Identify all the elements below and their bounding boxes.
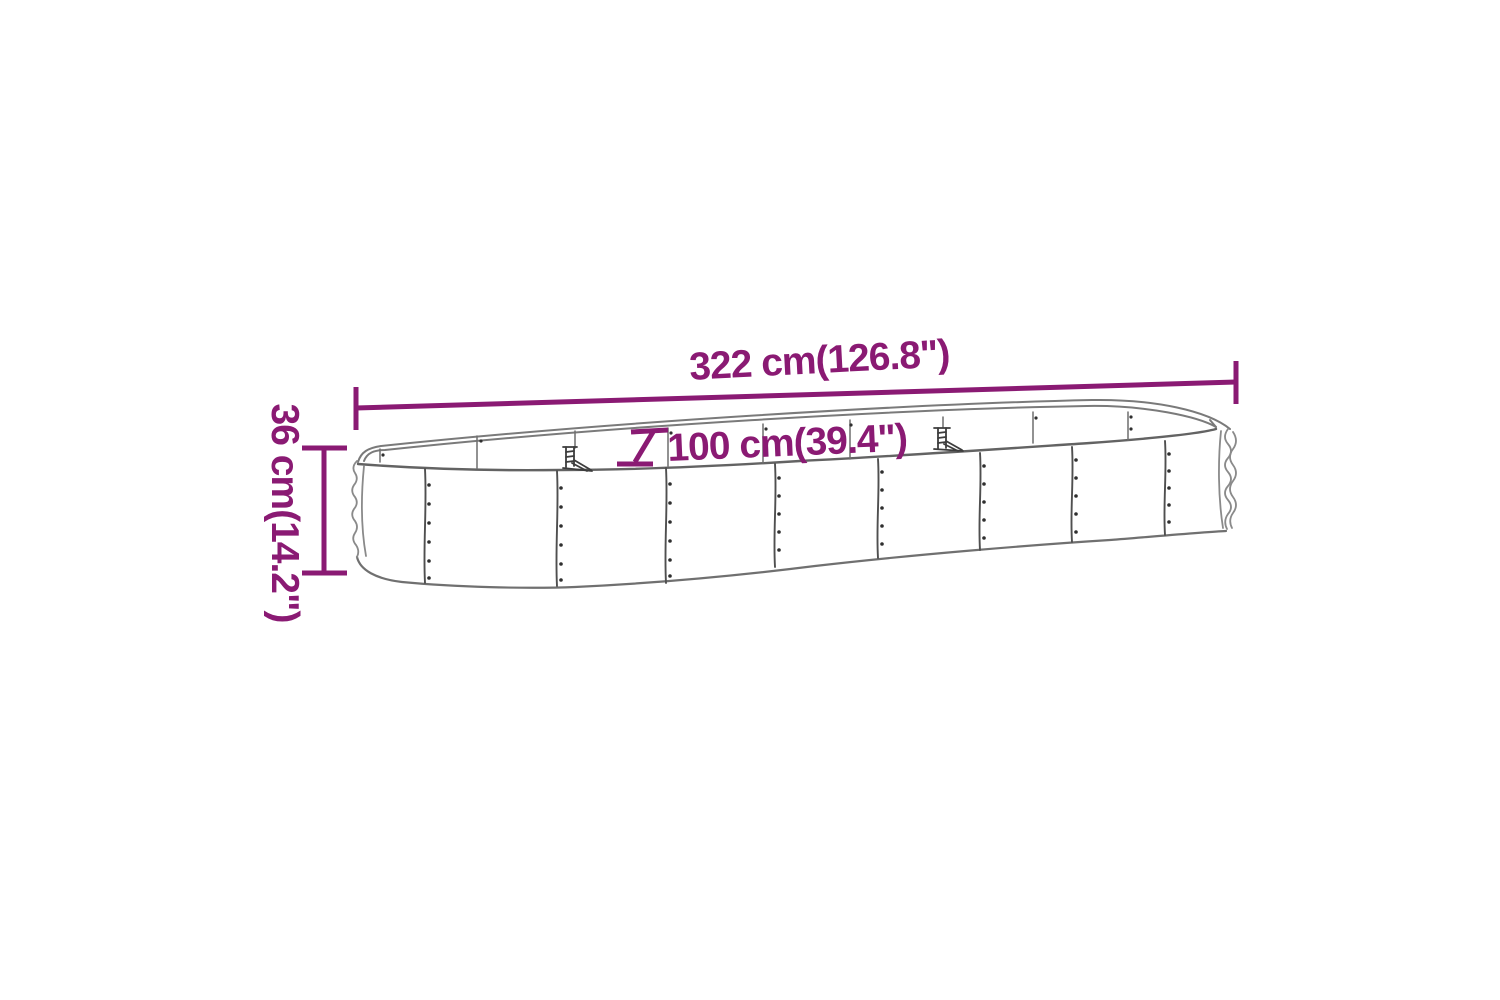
product-dimension-diagram: 322 cm(126.8") 100 cm(39.4") 36 cm(14.2"…: [0, 0, 1500, 1000]
support-bracket-left: [563, 447, 592, 471]
front-wall-bottom-edge: [357, 531, 1226, 588]
support-bracket-right: [934, 428, 963, 451]
height-dimension-label: 36 cm(14.2"): [263, 404, 306, 623]
corrugation-left: [352, 461, 366, 557]
garden-bed-dimension-drawing: 322 cm(126.8") 100 cm(39.4") 36 cm(14.2"…: [0, 0, 1500, 1000]
length-dimension-label: 322 cm(126.8"): [688, 332, 950, 389]
corrugation-right: [1219, 429, 1236, 529]
width-indicator-mark: [617, 430, 668, 464]
height-dimension-line: [302, 448, 347, 573]
width-dimension-label: 100 cm(39.4"): [667, 417, 908, 470]
